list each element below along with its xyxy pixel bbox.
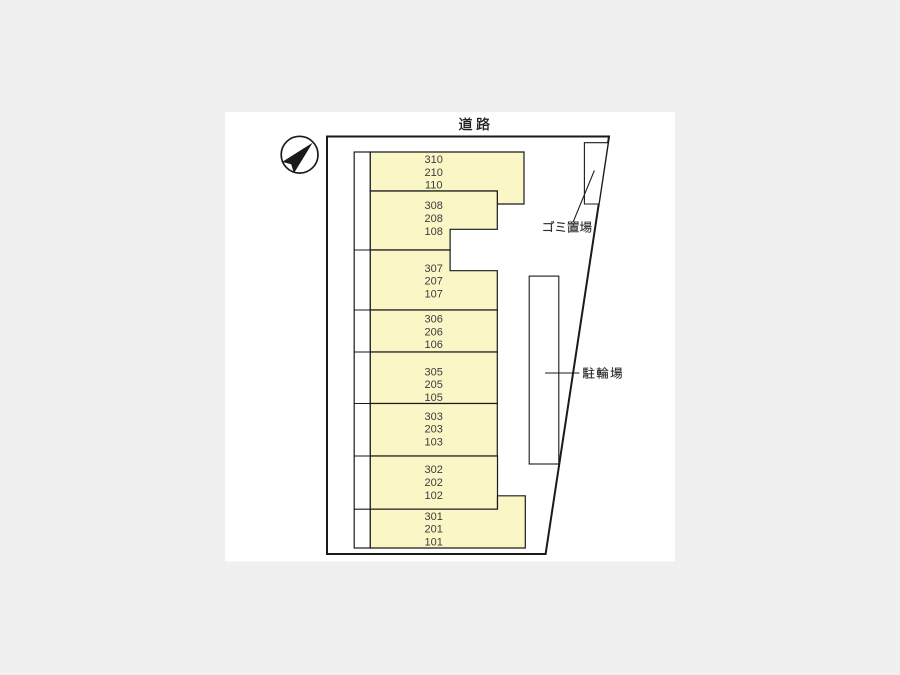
svg-text:302202102: 302202102 [425, 464, 443, 502]
svg-text:306206106: 306206106 [425, 314, 443, 352]
svg-text:303203103: 303203103 [425, 411, 443, 449]
svg-text:307207107: 307207107 [425, 263, 443, 301]
svg-text:305205105: 305205105 [425, 366, 443, 404]
svg-text:310210110: 310210110 [425, 154, 443, 192]
svg-text:301201101: 301201101 [425, 511, 443, 549]
svg-text:308208108: 308208108 [425, 200, 443, 238]
